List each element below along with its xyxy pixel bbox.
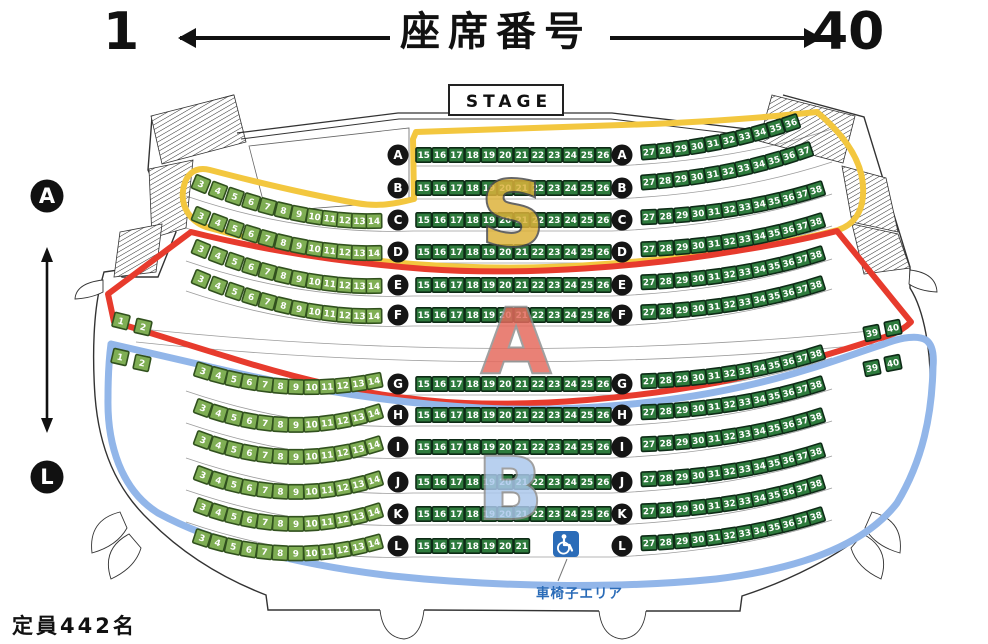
seat-L-21[interactable]: 21 xyxy=(514,539,529,553)
seat-I-29[interactable]: 29 xyxy=(674,434,691,450)
svg-text:15: 15 xyxy=(418,542,430,552)
seat-A-18[interactable]: 18 xyxy=(465,148,480,162)
seat-E-15[interactable]: 15 xyxy=(416,278,431,292)
seat-K-12[interactable]: 12 xyxy=(334,511,352,528)
seat-F-17[interactable]: 17 xyxy=(449,308,464,322)
seat-F-6[interactable]: 6 xyxy=(242,288,261,306)
seat-E-28[interactable]: 28 xyxy=(658,273,674,288)
seat-E-9[interactable]: 9 xyxy=(290,270,308,287)
seat-L-8[interactable]: 8 xyxy=(272,545,288,560)
seat-J-12[interactable]: 12 xyxy=(334,479,352,496)
seat-C-30[interactable]: 30 xyxy=(690,205,707,221)
seat-B-29[interactable]: 29 xyxy=(673,171,690,187)
seat-L-27[interactable]: 27 xyxy=(641,535,657,550)
seat-F-12[interactable]: 12 xyxy=(337,307,353,323)
seat-E-25[interactable]: 25 xyxy=(579,278,594,292)
svg-text:I: I xyxy=(620,440,624,454)
seat-D-25[interactable]: 25 xyxy=(579,245,594,259)
seat-K-8[interactable]: 8 xyxy=(272,516,288,531)
seat-F-15[interactable]: 15 xyxy=(416,308,431,322)
seat-D-16[interactable]: 16 xyxy=(432,245,447,259)
seat-H-29[interactable]: 29 xyxy=(674,402,691,418)
seat-H-12[interactable]: 12 xyxy=(334,412,352,429)
seat-K-9[interactable]: 9 xyxy=(288,517,303,531)
svg-text:8: 8 xyxy=(277,519,284,529)
seat-J-16[interactable]: 16 xyxy=(432,475,447,489)
seat-H-16[interactable]: 16 xyxy=(432,408,447,422)
seat-H-31[interactable]: 31 xyxy=(706,398,723,414)
seat-B-16[interactable]: 16 xyxy=(432,181,447,195)
seat-L-20[interactable]: 20 xyxy=(498,539,513,553)
seat-A-30[interactable]: 30 xyxy=(688,138,706,155)
seat-C-27[interactable]: 27 xyxy=(641,209,657,224)
seat-D-11[interactable]: 11 xyxy=(321,243,338,259)
seat-C-23[interactable]: 23 xyxy=(547,213,562,227)
seat-E-38[interactable]: 38 xyxy=(807,246,826,264)
seat-I-8[interactable]: 8 xyxy=(272,449,288,464)
seat-K-25[interactable]: 25 xyxy=(579,507,594,521)
seat-I-38[interactable]: 38 xyxy=(807,408,826,426)
seat-L-30[interactable]: 30 xyxy=(690,531,707,547)
seat-J-31[interactable]: 31 xyxy=(706,465,723,481)
seat-F-16[interactable]: 16 xyxy=(432,308,447,322)
seat-I-10[interactable]: 10 xyxy=(303,449,319,464)
seat-L-29[interactable]: 29 xyxy=(674,533,691,549)
seat-A-28[interactable]: 28 xyxy=(657,143,674,159)
seat-H-14[interactable]: 14 xyxy=(365,404,384,422)
seat-J-8[interactable]: 8 xyxy=(272,484,288,499)
seat-A-31[interactable]: 31 xyxy=(704,135,722,152)
svg-text:27: 27 xyxy=(643,440,656,451)
seat-L-15[interactable]: 15 xyxy=(416,539,431,553)
seat-E-14[interactable]: 14 xyxy=(366,279,382,294)
seat-J-27[interactable]: 27 xyxy=(641,471,657,486)
seat-K-15[interactable]: 15 xyxy=(416,507,431,521)
svg-text:12: 12 xyxy=(338,216,351,227)
svg-text:26: 26 xyxy=(597,380,609,390)
seat-K-14[interactable]: 14 xyxy=(365,503,384,521)
seat-J-26[interactable]: 26 xyxy=(596,475,611,489)
seat-L-19[interactable]: 19 xyxy=(481,539,496,553)
seat-I-25[interactable]: 25 xyxy=(579,440,594,454)
seat-C-3[interactable]: 3 xyxy=(191,174,211,193)
seat-B-18[interactable]: 18 xyxy=(465,181,480,195)
svg-text:23: 23 xyxy=(548,184,560,194)
seat-D-30[interactable]: 30 xyxy=(690,237,707,253)
seat-C-18[interactable]: 18 xyxy=(465,213,480,227)
seat-G-11[interactable]: 11 xyxy=(319,379,335,394)
seat-H-30[interactable]: 30 xyxy=(690,400,707,416)
seat-A-23[interactable]: 23 xyxy=(547,148,562,162)
seat-B-25[interactable]: 25 xyxy=(579,181,594,195)
svg-text:26: 26 xyxy=(597,248,609,258)
seat-C-9[interactable]: 9 xyxy=(290,205,308,222)
seat-H-28[interactable]: 28 xyxy=(658,403,674,418)
seat-J-11[interactable]: 11 xyxy=(319,482,336,498)
seat-H-17[interactable]: 17 xyxy=(449,408,464,422)
seat-E-18[interactable]: 18 xyxy=(465,278,480,292)
seat-G-39[interactable]: 39 xyxy=(863,359,881,376)
seat-G-2[interactable]: 2 xyxy=(133,354,151,371)
seat-G-9[interactable]: 9 xyxy=(288,379,304,394)
seat-D-28[interactable]: 28 xyxy=(658,240,674,255)
seat-D-9[interactable]: 9 xyxy=(290,237,308,254)
seat-K-30[interactable]: 30 xyxy=(690,499,707,515)
seat-C-38[interactable]: 38 xyxy=(807,181,826,199)
seat-G-31[interactable]: 31 xyxy=(706,367,723,383)
seat-C-17[interactable]: 17 xyxy=(449,213,464,227)
seat-L-12[interactable]: 12 xyxy=(334,541,351,558)
seat-H-21[interactable]: 21 xyxy=(514,408,529,422)
seat-C-25[interactable]: 25 xyxy=(579,213,594,227)
seat-A-22[interactable]: 22 xyxy=(530,148,545,162)
seat-I-12[interactable]: 12 xyxy=(334,444,352,461)
seat-E-5[interactable]: 5 xyxy=(225,252,244,271)
seat-G-1[interactable]: 1 xyxy=(111,348,129,365)
seat-D-7[interactable]: 7 xyxy=(258,230,277,248)
seat-K-11[interactable]: 11 xyxy=(319,514,336,530)
svg-text:24: 24 xyxy=(565,184,577,194)
seat-C-26[interactable]: 26 xyxy=(596,213,611,227)
seat-L-18[interactable]: 18 xyxy=(465,539,480,553)
seat-D-12[interactable]: 12 xyxy=(337,244,353,260)
seat-H-9[interactable]: 9 xyxy=(288,418,303,432)
seat-K-23[interactable]: 23 xyxy=(547,507,562,521)
seat-K-16[interactable]: 16 xyxy=(432,507,447,521)
seat-I-15[interactable]: 15 xyxy=(416,440,431,454)
seat-D-26[interactable]: 26 xyxy=(596,245,611,259)
seat-D-14[interactable]: 14 xyxy=(366,246,382,261)
seat-C-31[interactable]: 31 xyxy=(706,203,723,219)
seat-A-25[interactable]: 25 xyxy=(579,148,594,162)
seat-L-11[interactable]: 11 xyxy=(319,544,336,560)
seat-B-15[interactable]: 15 xyxy=(416,181,431,195)
seat-A-19[interactable]: 19 xyxy=(481,148,496,162)
seat-F-1[interactable]: 1 xyxy=(112,312,130,330)
seat-A-29[interactable]: 29 xyxy=(673,140,690,156)
seat-L-5[interactable]: 5 xyxy=(224,538,242,555)
seat-F-9[interactable]: 9 xyxy=(290,300,308,317)
seat-K-6[interactable]: 6 xyxy=(241,511,259,528)
seat-E-30[interactable]: 30 xyxy=(690,270,707,286)
seat-L-10[interactable]: 10 xyxy=(303,545,319,560)
seat-G-17[interactable]: 17 xyxy=(449,377,464,391)
seat-C-4[interactable]: 4 xyxy=(208,181,227,200)
seat-A-32[interactable]: 32 xyxy=(720,131,738,148)
seat-I-24[interactable]: 24 xyxy=(563,440,578,454)
seat-H-11[interactable]: 11 xyxy=(319,415,336,431)
seat-J-9[interactable]: 9 xyxy=(288,485,303,499)
seat-F-14[interactable]: 14 xyxy=(366,309,382,324)
svg-text:8: 8 xyxy=(277,382,284,392)
seat-L-6[interactable]: 6 xyxy=(240,541,258,558)
seat-F-4[interactable]: 4 xyxy=(208,276,227,295)
svg-text:22: 22 xyxy=(532,411,544,421)
svg-text:17: 17 xyxy=(450,380,462,390)
seat-B-24[interactable]: 24 xyxy=(563,181,578,195)
seat-F-38[interactable]: 38 xyxy=(807,276,826,294)
svg-text:12: 12 xyxy=(338,311,351,322)
seat-F-8[interactable]: 8 xyxy=(274,297,292,315)
seat-H-20[interactable]: 20 xyxy=(498,408,513,422)
seat-L-9[interactable]: 9 xyxy=(288,546,303,560)
svg-text:24: 24 xyxy=(565,510,577,520)
svg-text:26: 26 xyxy=(597,443,609,453)
seat-H-10[interactable]: 10 xyxy=(303,417,319,432)
seat-H-23[interactable]: 23 xyxy=(547,408,562,422)
seat-D-31[interactable]: 31 xyxy=(706,235,723,251)
seat-D-17[interactable]: 17 xyxy=(449,245,464,259)
seat-L-16[interactable]: 16 xyxy=(432,539,447,553)
seat-I-30[interactable]: 30 xyxy=(690,432,707,448)
seat-G-12[interactable]: 12 xyxy=(334,377,351,393)
seat-G-5[interactable]: 5 xyxy=(225,370,243,387)
svg-text:18: 18 xyxy=(467,184,479,194)
svg-text:27: 27 xyxy=(643,213,656,224)
seat-F-27[interactable]: 27 xyxy=(641,304,657,319)
seat-E-24[interactable]: 24 xyxy=(563,278,578,292)
seat-F-24[interactable]: 24 xyxy=(563,308,578,322)
seat-F-26[interactable]: 26 xyxy=(596,308,611,322)
seat-L-28[interactable]: 28 xyxy=(658,534,674,549)
seat-A-21[interactable]: 21 xyxy=(514,148,529,162)
seat-F-10[interactable]: 10 xyxy=(306,303,323,320)
seat-D-10[interactable]: 10 xyxy=(306,240,323,257)
seat-K-31[interactable]: 31 xyxy=(706,497,723,513)
seat-D-18[interactable]: 18 xyxy=(465,245,480,259)
seat-F-2[interactable]: 2 xyxy=(134,318,152,335)
seat-E-13[interactable]: 13 xyxy=(352,278,368,293)
seat-D-24[interactable]: 24 xyxy=(563,245,578,259)
seat-G-38[interactable]: 38 xyxy=(807,345,826,363)
svg-text:19: 19 xyxy=(483,411,495,421)
seat-E-26[interactable]: 26 xyxy=(596,278,611,292)
svg-text:33: 33 xyxy=(738,464,752,476)
seat-C-12[interactable]: 12 xyxy=(337,212,353,228)
seat-F-7[interactable]: 7 xyxy=(258,293,277,311)
seat-K-24[interactable]: 24 xyxy=(563,507,578,521)
seat-B-27[interactable]: 27 xyxy=(641,174,657,189)
seat-C-10[interactable]: 10 xyxy=(306,208,323,225)
seat-C-24[interactable]: 24 xyxy=(563,213,578,227)
seat-J-17[interactable]: 17 xyxy=(449,475,464,489)
seat-F-3[interactable]: 3 xyxy=(191,269,211,288)
seat-J-30[interactable]: 30 xyxy=(690,467,707,483)
seat-J-23[interactable]: 23 xyxy=(547,475,562,489)
svg-text:22: 22 xyxy=(532,151,544,161)
seat-H-22[interactable]: 22 xyxy=(530,408,545,422)
seat-F-28[interactable]: 28 xyxy=(658,303,674,318)
seat-F-29[interactable]: 29 xyxy=(674,302,691,318)
seat-F-30[interactable]: 30 xyxy=(690,300,707,316)
seat-J-7[interactable]: 7 xyxy=(256,482,273,498)
seat-E-8[interactable]: 8 xyxy=(274,267,292,285)
seat-F-5[interactable]: 5 xyxy=(225,282,244,301)
svg-text:33: 33 xyxy=(738,366,752,378)
seat-E-11[interactable]: 11 xyxy=(321,276,338,292)
seat-K-17[interactable]: 17 xyxy=(449,507,464,521)
seat-E-10[interactable]: 10 xyxy=(306,273,323,290)
seat-A-24[interactable]: 24 xyxy=(563,148,578,162)
seat-A-15[interactable]: 15 xyxy=(416,148,431,162)
seat-G-30[interactable]: 30 xyxy=(690,369,707,385)
seat-K-7[interactable]: 7 xyxy=(256,514,273,530)
seat-D-13[interactable]: 13 xyxy=(352,245,368,260)
seat-G-10[interactable]: 10 xyxy=(304,380,320,395)
seat-H-19[interactable]: 19 xyxy=(481,408,496,422)
seat-H-15[interactable]: 15 xyxy=(416,408,431,422)
seat-G-15[interactable]: 15 xyxy=(416,377,431,391)
seat-C-14[interactable]: 14 xyxy=(366,214,382,229)
seat-I-17[interactable]: 17 xyxy=(449,440,464,454)
seat-F-25[interactable]: 25 xyxy=(579,308,594,322)
seat-L-7[interactable]: 7 xyxy=(256,544,273,560)
seat-E-6[interactable]: 6 xyxy=(242,258,261,276)
seat-G-6[interactable]: 6 xyxy=(241,374,259,391)
svg-text:24: 24 xyxy=(565,411,577,421)
seat-I-16[interactable]: 16 xyxy=(432,440,447,454)
seat-I-7[interactable]: 7 xyxy=(256,447,273,463)
seat-G-7[interactable]: 7 xyxy=(256,376,273,392)
seat-D-27[interactable]: 27 xyxy=(641,241,657,256)
seat-F-18[interactable]: 18 xyxy=(465,308,480,322)
seat-D-15[interactable]: 15 xyxy=(416,245,431,259)
seat-L-14[interactable]: 14 xyxy=(365,534,384,552)
seat-A-16[interactable]: 16 xyxy=(432,148,447,162)
seat-F-31[interactable]: 31 xyxy=(706,298,723,314)
seat-E-31[interactable]: 31 xyxy=(706,268,723,284)
seat-J-6[interactable]: 6 xyxy=(241,479,259,496)
seat-G-28[interactable]: 28 xyxy=(658,372,674,387)
seat-C-11[interactable]: 11 xyxy=(321,211,338,227)
seat-D-38[interactable]: 38 xyxy=(807,213,826,231)
seat-K-26[interactable]: 26 xyxy=(596,507,611,521)
seat-J-14[interactable]: 14 xyxy=(365,471,384,489)
seat-I-11[interactable]: 11 xyxy=(319,447,336,463)
seat-G-8[interactable]: 8 xyxy=(272,378,289,394)
seat-K-29[interactable]: 29 xyxy=(674,501,691,517)
seat-E-4[interactable]: 4 xyxy=(208,246,227,265)
seat-G-24[interactable]: 24 xyxy=(563,377,578,391)
seat-A-26[interactable]: 26 xyxy=(596,148,611,162)
seat-A-27[interactable]: 27 xyxy=(641,144,658,160)
seat-A-20[interactable]: 20 xyxy=(498,148,513,162)
seat-H-27[interactable]: 27 xyxy=(641,404,657,419)
seat-F-13[interactable]: 13 xyxy=(352,308,368,323)
seat-I-9[interactable]: 9 xyxy=(288,450,303,464)
seat-H-7[interactable]: 7 xyxy=(256,415,273,431)
seat-J-38[interactable]: 38 xyxy=(807,443,826,461)
seat-C-8[interactable]: 8 xyxy=(274,202,292,220)
seat-E-16[interactable]: 16 xyxy=(432,278,447,292)
seat-G-27[interactable]: 27 xyxy=(641,373,657,388)
seat-B-31[interactable]: 31 xyxy=(704,166,722,183)
svg-text:18: 18 xyxy=(467,510,479,520)
seat-J-29[interactable]: 29 xyxy=(674,469,691,485)
seat-E-7[interactable]: 7 xyxy=(258,263,277,281)
seat-I-28[interactable]: 28 xyxy=(658,435,674,450)
seat-D-29[interactable]: 29 xyxy=(674,239,691,255)
seat-L-31[interactable]: 31 xyxy=(706,529,723,545)
seat-L-17[interactable]: 17 xyxy=(449,539,464,553)
seat-I-23[interactable]: 23 xyxy=(547,440,562,454)
seat-J-25[interactable]: 25 xyxy=(579,475,594,489)
seat-B-23[interactable]: 23 xyxy=(547,181,562,195)
seat-I-31[interactable]: 31 xyxy=(706,430,723,446)
seat-C-5[interactable]: 5 xyxy=(225,187,244,206)
seat-G-26[interactable]: 26 xyxy=(596,377,611,391)
seat-E-3[interactable]: 3 xyxy=(191,239,211,258)
seat-C-29[interactable]: 29 xyxy=(674,207,691,223)
seat-G-16[interactable]: 16 xyxy=(432,377,447,391)
seat-H-24[interactable]: 24 xyxy=(563,408,578,422)
seat-B-26[interactable]: 26 xyxy=(596,181,611,195)
seat-I-14[interactable]: 14 xyxy=(365,436,384,454)
seat-B-30[interactable]: 30 xyxy=(688,168,705,184)
seat-F-40[interactable]: 40 xyxy=(884,319,902,336)
seat-C-6[interactable]: 6 xyxy=(242,193,261,211)
seat-E-17[interactable]: 17 xyxy=(449,278,464,292)
seat-B-17[interactable]: 17 xyxy=(449,181,464,195)
seat-E-29[interactable]: 29 xyxy=(674,272,691,288)
seat-B-28[interactable]: 28 xyxy=(657,173,674,189)
seat-D-23[interactable]: 23 xyxy=(547,245,562,259)
seat-K-27[interactable]: 27 xyxy=(641,503,657,518)
seat-K-38[interactable]: 38 xyxy=(807,475,826,493)
svg-text:20: 20 xyxy=(499,151,511,161)
seat-K-28[interactable]: 28 xyxy=(658,502,674,517)
seat-G-13[interactable]: 13 xyxy=(350,375,367,391)
seat-H-18[interactable]: 18 xyxy=(465,408,480,422)
seat-G-29[interactable]: 29 xyxy=(674,371,691,387)
svg-text:C: C xyxy=(394,213,403,227)
seat-G-14[interactable]: 14 xyxy=(365,373,383,390)
seat-C-28[interactable]: 28 xyxy=(658,208,674,223)
seat-A-17[interactable]: 17 xyxy=(449,148,464,162)
seat-F-11[interactable]: 11 xyxy=(321,306,338,322)
seat-J-15[interactable]: 15 xyxy=(416,475,431,489)
seat-C-15[interactable]: 15 xyxy=(416,213,431,227)
seat-L-38[interactable]: 38 xyxy=(807,507,826,525)
svg-text:27: 27 xyxy=(643,408,656,419)
seat-G-25[interactable]: 25 xyxy=(579,377,594,391)
svg-text:16: 16 xyxy=(434,311,446,321)
seat-D-8[interactable]: 8 xyxy=(274,234,292,252)
seat-F-39[interactable]: 39 xyxy=(863,324,881,341)
seat-H-8[interactable]: 8 xyxy=(272,417,288,432)
svg-text:14: 14 xyxy=(368,249,380,259)
seat-H-38[interactable]: 38 xyxy=(807,376,826,394)
seat-J-10[interactable]: 10 xyxy=(303,484,319,499)
seat-J-24[interactable]: 24 xyxy=(563,475,578,489)
seat-K-10[interactable]: 10 xyxy=(303,516,319,531)
seat-H-26[interactable]: 26 xyxy=(596,408,611,422)
seat-H-6[interactable]: 6 xyxy=(241,412,259,429)
seat-J-28[interactable]: 28 xyxy=(658,470,674,485)
seat-I-27[interactable]: 27 xyxy=(641,436,657,451)
seat-G-40[interactable]: 40 xyxy=(884,354,902,371)
svg-text:23: 23 xyxy=(548,248,560,258)
seat-C-7[interactable]: 7 xyxy=(258,198,277,216)
seat-E-27[interactable]: 27 xyxy=(641,274,657,289)
seat-C-16[interactable]: 16 xyxy=(432,213,447,227)
seat-C-13[interactable]: 13 xyxy=(352,213,368,228)
seat-I-6[interactable]: 6 xyxy=(241,444,259,461)
seat-I-26[interactable]: 26 xyxy=(596,440,611,454)
seat-G-18[interactable]: 18 xyxy=(465,377,480,391)
seat-E-12[interactable]: 12 xyxy=(337,277,353,293)
seat-H-25[interactable]: 25 xyxy=(579,408,594,422)
